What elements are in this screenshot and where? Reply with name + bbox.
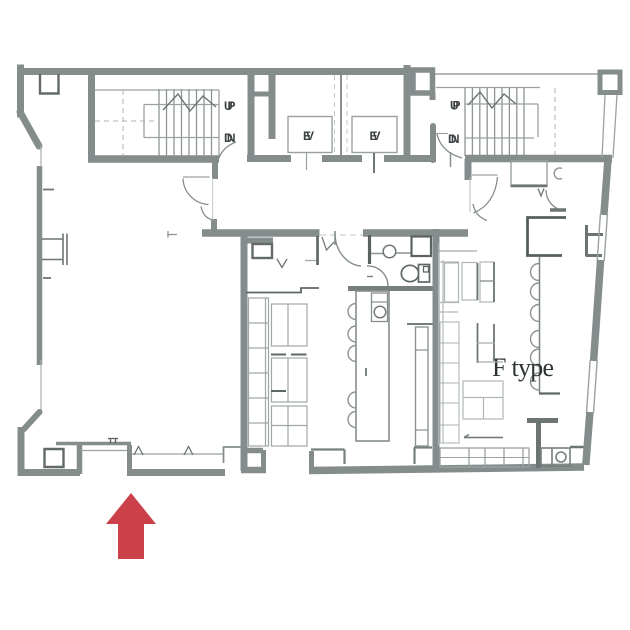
svg-text:EV: EV xyxy=(303,129,314,143)
svg-text:DN: DN xyxy=(448,132,460,146)
svg-text:UP: UP xyxy=(450,99,461,113)
svg-text:F type: F type xyxy=(492,353,554,382)
svg-text:EV: EV xyxy=(370,129,381,143)
svg-text:UP: UP xyxy=(224,99,236,113)
